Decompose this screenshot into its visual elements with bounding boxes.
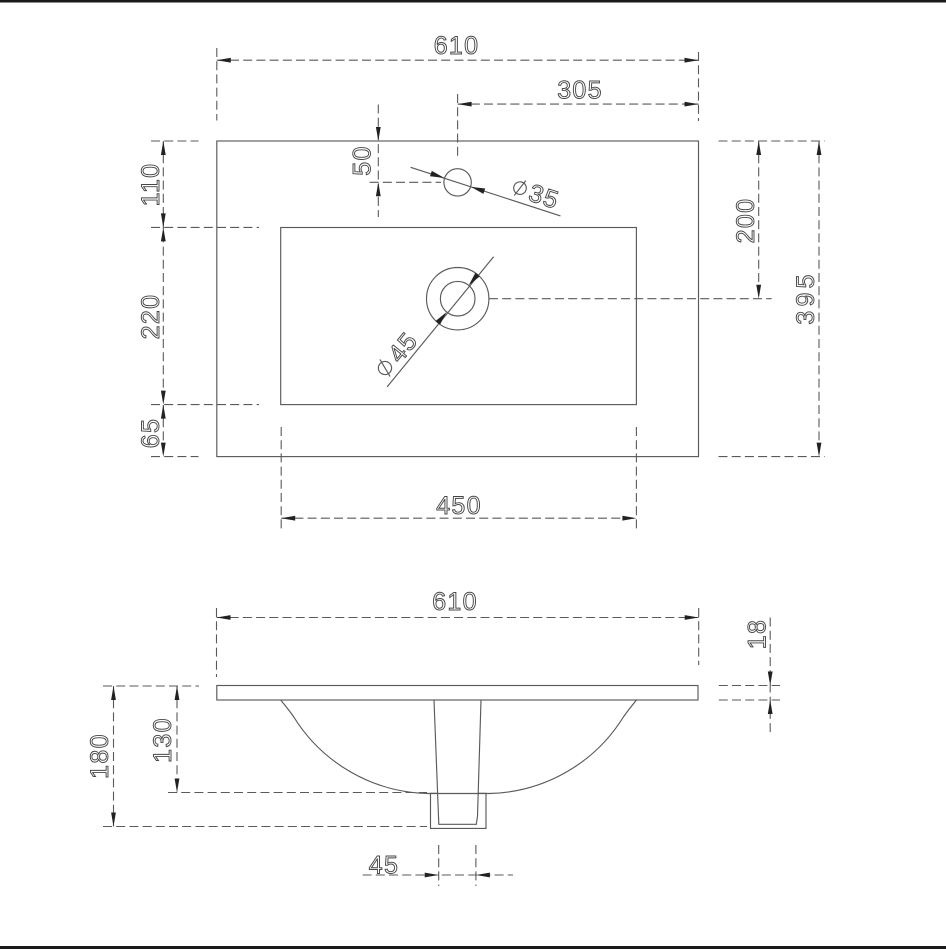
svg-text:450: 450 — [436, 492, 482, 520]
svg-text:50: 50 — [349, 145, 377, 175]
svg-text:305: 305 — [557, 77, 603, 105]
svg-text:610: 610 — [432, 588, 478, 616]
svg-text:110: 110 — [137, 163, 165, 207]
svg-text:45: 45 — [369, 852, 399, 880]
svg-text:220: 220 — [137, 294, 165, 340]
svg-text:200: 200 — [732, 198, 760, 244]
svg-text:610: 610 — [434, 32, 480, 60]
svg-text:18: 18 — [744, 619, 772, 649]
svg-text:130: 130 — [149, 717, 177, 763]
svg-text:395: 395 — [792, 270, 820, 324]
svg-text:180: 180 — [86, 733, 114, 779]
svg-text:65: 65 — [137, 418, 165, 448]
